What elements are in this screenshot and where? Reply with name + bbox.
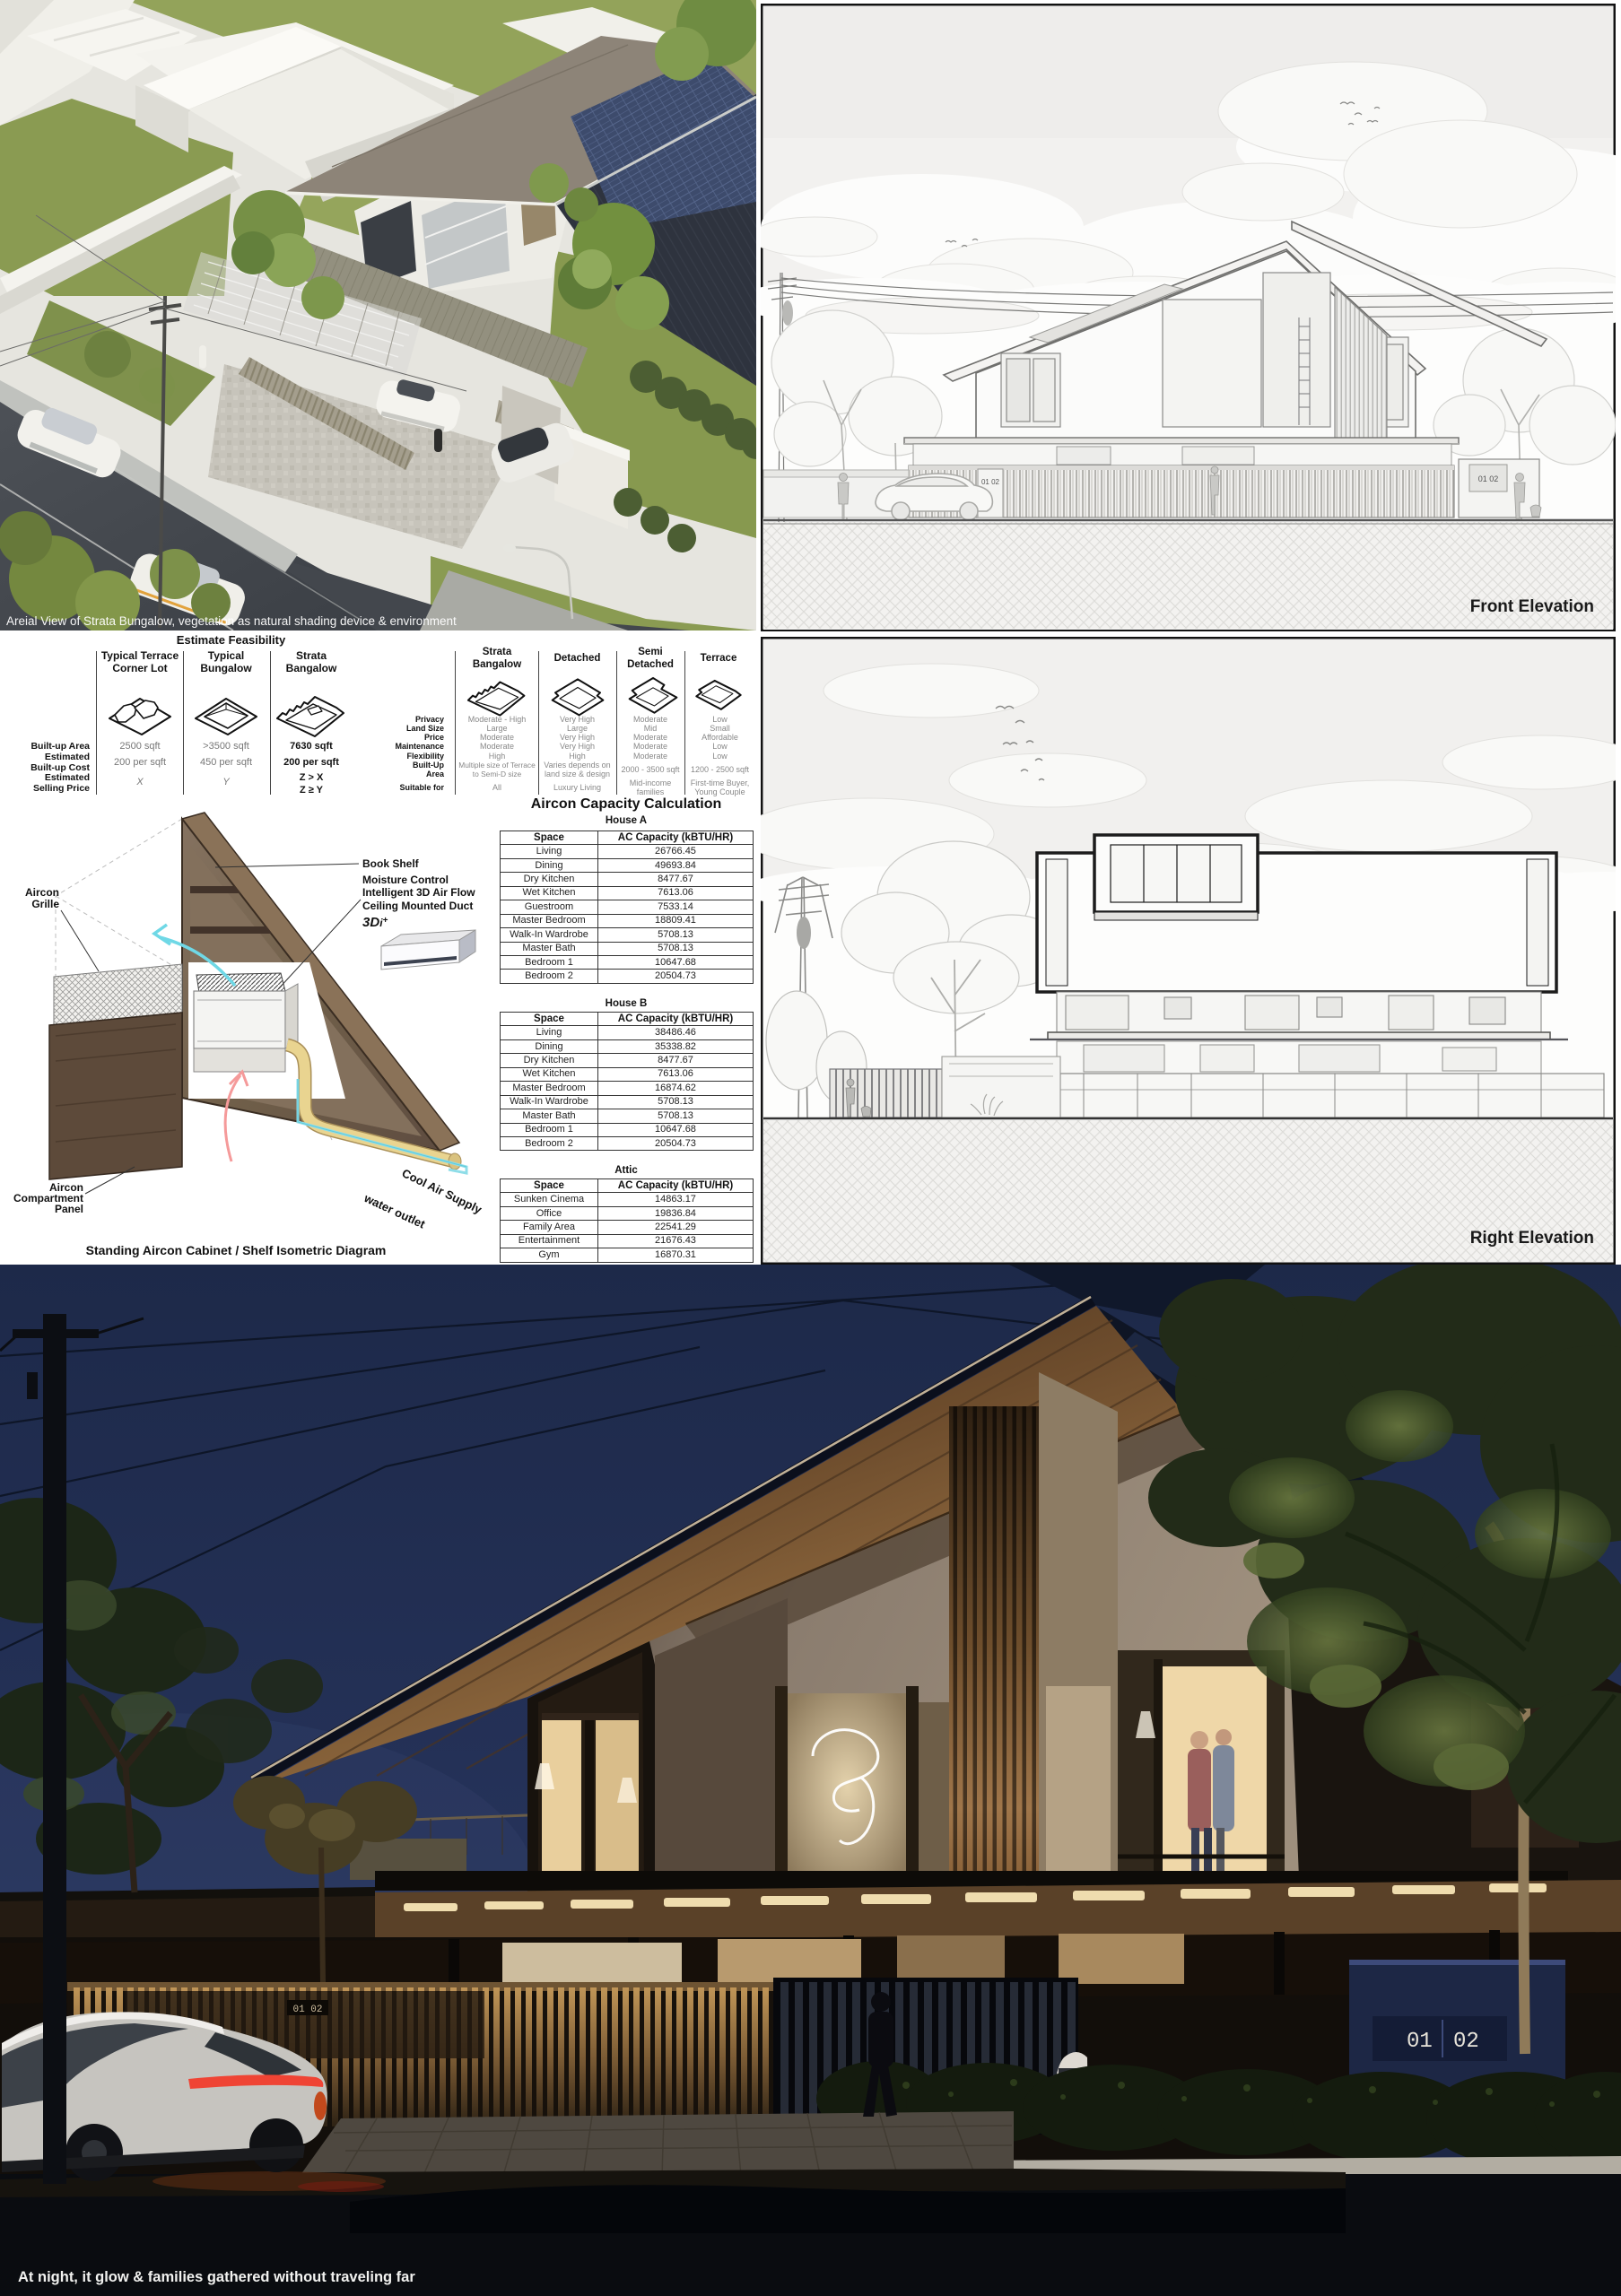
svg-text:01 02: 01 02: [292, 2005, 322, 2015]
svg-text:Intelligent 3D Air Flow: Intelligent 3D Air Flow: [362, 886, 475, 899]
svg-text:Cool Air Supply: Cool Air Supply: [400, 1166, 484, 1216]
svg-text:Ceiling Mounted Duct: Ceiling Mounted Duct: [362, 900, 473, 912]
svg-text:At night, it glow & families g: At night, it glow & families gathered wi…: [18, 2269, 415, 2285]
svg-text:Right Elevation: Right Elevation: [1470, 1229, 1594, 1248]
svg-text:Panel: Panel: [55, 1203, 83, 1215]
svg-text:01: 01: [1407, 2030, 1433, 2054]
svg-text:Areial View of Strata Bungalow: Areial View of Strata Bungalow, vegetati…: [6, 614, 457, 628]
svg-text:Aircon: Aircon: [25, 886, 59, 899]
svg-text:Standing Aircon Cabinet / Shel: Standing Aircon Cabinet / Shelf Isometri…: [86, 1243, 387, 1257]
svg-text:01 02: 01 02: [1478, 474, 1499, 483]
svg-text:Front Elevation: Front Elevation: [1470, 597, 1594, 616]
svg-text:01 02: 01 02: [981, 478, 1000, 486]
svg-text:02: 02: [1453, 2030, 1479, 2054]
svg-text:water outlet: water outlet: [362, 1191, 428, 1231]
svg-text:3Di+: 3Di+: [362, 915, 388, 930]
svg-text:Moisture Control: Moisture Control: [362, 874, 449, 886]
svg-text:Book Shelf: Book Shelf: [362, 857, 420, 870]
svg-text:Grille: Grille: [31, 898, 59, 910]
